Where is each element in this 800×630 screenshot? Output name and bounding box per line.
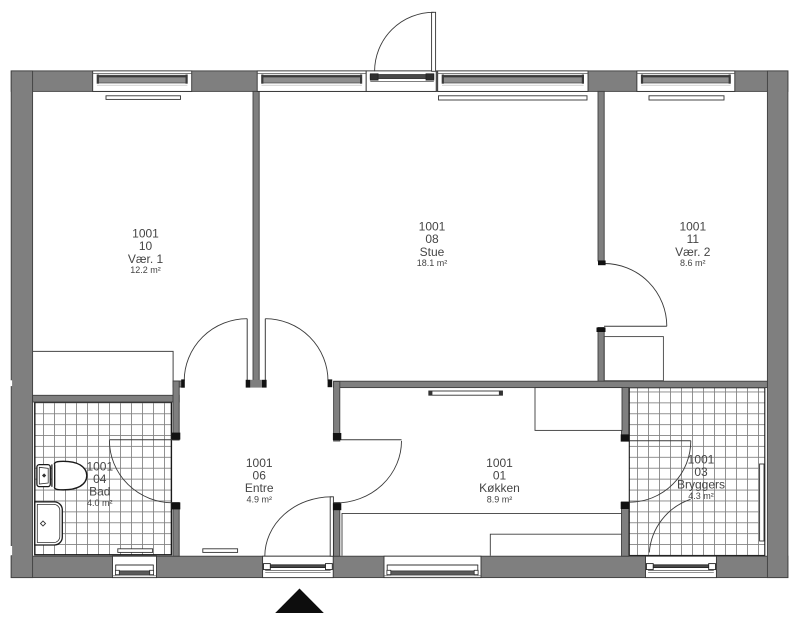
svg-text:4.9 m²: 4.9 m² [246, 495, 272, 505]
svg-text:18.1 m²: 18.1 m² [417, 258, 448, 268]
svg-text:Stue: Stue [420, 245, 445, 259]
svg-text:Bryggers: Bryggers [677, 478, 725, 492]
svg-text:Entre: Entre [245, 481, 274, 495]
svg-text:Bad: Bad [89, 485, 110, 499]
svg-text:8.9 m²: 8.9 m² [487, 494, 513, 504]
svg-text:Vær. 2: Vær. 2 [675, 245, 711, 259]
svg-text:Køkken: Køkken [479, 481, 520, 495]
svg-text:4.0 m²: 4.0 m² [87, 498, 113, 508]
svg-text:Vær. 1: Vær. 1 [128, 252, 164, 266]
svg-text:12.2 m²: 12.2 m² [130, 265, 161, 275]
svg-text:8.6 m²: 8.6 m² [680, 258, 706, 268]
svg-text:4.3 m²: 4.3 m² [688, 491, 714, 501]
